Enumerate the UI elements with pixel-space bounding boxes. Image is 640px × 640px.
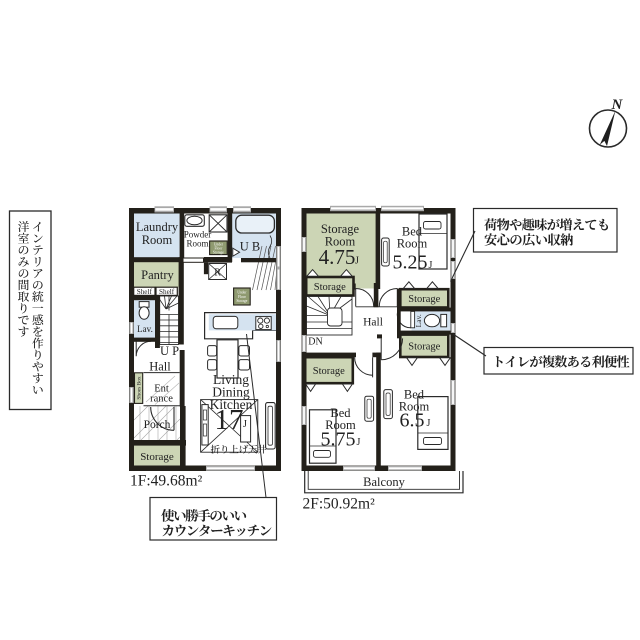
svg-text:Balcony: Balcony [363,475,405,489]
svg-text:Shoes Box: Shoes Box [136,376,142,400]
svg-text:Room: Room [397,237,428,251]
svg-text:J: J [243,419,247,430]
svg-text:Hall: Hall [363,317,383,329]
svg-text:17: 17 [215,404,244,436]
svg-text:4.75: 4.75 [319,245,356,269]
svg-text:Storage: Storage [313,366,345,377]
svg-text:5.75: 5.75 [321,429,356,451]
svg-text:Shelf: Shelf [159,288,175,296]
svg-text:5.25: 5.25 [393,252,428,274]
svg-text:2F:50.92m²: 2F:50.92m² [303,496,376,513]
svg-text:N: N [611,97,624,113]
svg-text:Storage: Storage [140,451,174,463]
svg-text:U P: U P [160,344,179,358]
svg-text:Lav.: Lav. [137,324,153,334]
svg-text:R: R [214,268,221,279]
svg-text:Room: Room [142,233,173,247]
svg-text:U B: U B [240,240,261,254]
svg-text:Shelf: Shelf [137,288,153,296]
svg-text:1F:49.68m²: 1F:49.68m² [130,473,203,490]
svg-text:Storage: Storage [213,251,224,255]
svg-text:Storage: Storage [408,342,440,353]
svg-text:Storage: Storage [314,282,346,293]
svg-text:Hall: Hall [149,360,171,374]
svg-text:J: J [357,437,361,448]
svg-text:Storage: Storage [408,294,440,305]
svg-text:Laundry: Laundry [136,220,179,234]
svg-text:Lav.: Lav. [414,314,423,327]
svg-text:Pantry: Pantry [141,268,174,282]
svg-text:J: J [429,260,433,271]
svg-text:DN: DN [308,337,322,348]
svg-text:rance: rance [150,394,173,405]
svg-text:J: J [427,418,431,429]
svg-text:Room: Room [186,239,208,249]
svg-text:Storage: Storage [236,299,247,303]
svg-text:J: J [355,256,359,267]
svg-text:6.5: 6.5 [400,410,425,432]
